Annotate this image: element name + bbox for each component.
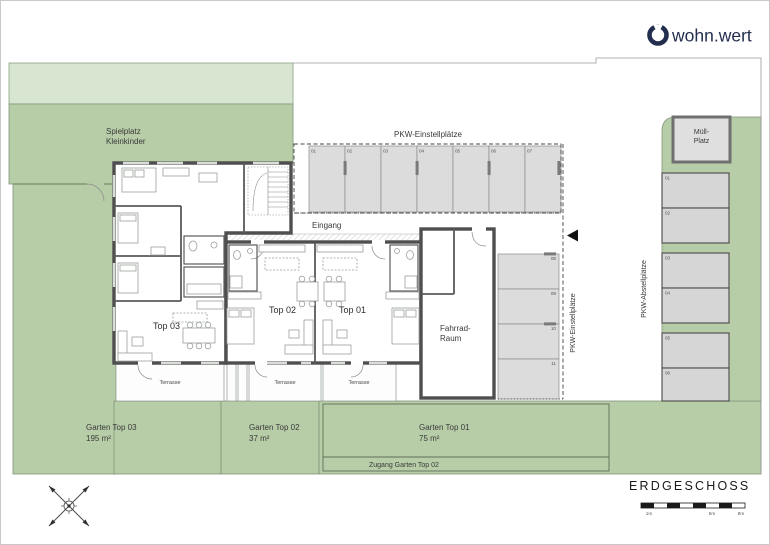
stall-number: 01 xyxy=(311,149,317,154)
bike-room-label-line1: Fahrrad- xyxy=(440,324,471,333)
brand-logo: wohn.wert xyxy=(650,25,752,46)
entrance-label: Eingang xyxy=(312,221,341,230)
terrace-label: Terrasse xyxy=(348,380,369,386)
stall-number: 11 xyxy=(551,361,556,366)
parking-stall xyxy=(662,253,729,288)
dining-table xyxy=(324,282,345,301)
garden-path-strip xyxy=(227,364,236,401)
shower-icon xyxy=(230,276,242,288)
parking-stall xyxy=(662,333,729,368)
kitchen-counter xyxy=(317,245,363,252)
toilet-icon xyxy=(189,241,197,251)
apartment-label-top02: Top 02 xyxy=(269,305,296,315)
stall-number: 05 xyxy=(455,149,461,154)
direction-arrow-icon xyxy=(567,230,578,242)
parking-stall xyxy=(381,146,417,212)
coffee-table xyxy=(289,330,299,338)
garden-top02-name: Garten Top 02 xyxy=(249,423,300,432)
wheel-stop xyxy=(544,252,556,255)
scale-tick: 1m xyxy=(646,511,653,516)
parking-stall xyxy=(662,368,729,401)
wheel-stop xyxy=(557,161,560,175)
garden-top03-area: 195 m² xyxy=(86,434,111,443)
parking-stall xyxy=(489,146,525,212)
scale-tick: 8m xyxy=(738,511,745,516)
wheel-stop xyxy=(344,161,347,175)
parking-right-column: Müll- Platz 01 02 03 04 05 06 PKW-Abstel… xyxy=(641,117,730,401)
parking-stall xyxy=(309,146,345,212)
parking-stall xyxy=(662,208,729,243)
stall-number: 06 xyxy=(665,371,671,376)
scale-tick: 5m xyxy=(709,511,716,516)
wardrobe xyxy=(163,168,189,176)
parking-stall xyxy=(498,254,559,289)
terrace-label: Terrasse xyxy=(274,380,295,386)
toilet-icon xyxy=(234,251,241,260)
stall-number: 08 xyxy=(551,256,557,261)
stall-number: 02 xyxy=(347,149,353,154)
toilet-icon xyxy=(407,251,414,260)
stall-number: 04 xyxy=(665,291,671,296)
parking-stalls-top: 01 02 03 04 05 06 07 xyxy=(309,146,561,212)
parking-stall xyxy=(453,146,489,212)
garden-access-label: Zugang Garten Top 02 xyxy=(369,462,439,469)
shower-icon xyxy=(405,276,417,288)
garden-top01-area: 75 m² xyxy=(419,434,440,443)
garden-top03-name: Garten Top 03 xyxy=(86,423,137,432)
wardrobe xyxy=(228,292,261,299)
stall-number: 10 xyxy=(551,326,557,331)
stall-number: 03 xyxy=(665,256,671,261)
building-block-bike xyxy=(421,229,494,398)
apartment-label-top03: Top 03 xyxy=(153,321,180,331)
playground-label-line2: Kleinkinder xyxy=(106,137,146,146)
wheel-stop xyxy=(544,322,556,325)
parking-stall xyxy=(417,146,453,212)
plan-title: ERDGESCHOSS xyxy=(629,479,750,493)
wheel-stop xyxy=(416,161,419,175)
bike-room-label-line2: Raum xyxy=(440,334,462,343)
stall-number: 06 xyxy=(491,149,497,154)
stall-number: 09 xyxy=(551,291,557,296)
dining-table xyxy=(297,282,318,301)
desk xyxy=(151,247,165,255)
compass-rose-icon xyxy=(49,486,89,526)
garden-top02-area: 37 m² xyxy=(249,434,270,443)
green-buffer-strip xyxy=(9,63,293,104)
coffee-table xyxy=(132,337,143,346)
sink-icon xyxy=(211,242,217,248)
plan-footer: ERDGESCHOSS 1m 5m 8m xyxy=(629,479,750,516)
garden-top01-name: Garten Top 01 xyxy=(419,423,470,432)
parking-right-label: PKW-Abstellplätze xyxy=(641,260,648,318)
sink-icon xyxy=(395,249,400,254)
kitchen-counter xyxy=(197,301,223,309)
parking-top-label: PKW-Einstellplätze xyxy=(394,130,462,139)
garden-path-strip xyxy=(238,364,247,401)
logo-wordmark: wohn.wert xyxy=(671,26,752,46)
playground-label-line1: Spielplatz xyxy=(106,127,141,136)
site-plan-drawing: Spielplatz Kleinkinder PKW-Einstellplätz… xyxy=(1,1,770,545)
parking-stall xyxy=(345,146,381,212)
coffee-table xyxy=(337,330,347,338)
waste-label-line2: Platz xyxy=(694,138,710,145)
desk xyxy=(199,173,217,182)
parking-stall xyxy=(662,288,729,323)
scale-bar: 1m 5m 8m xyxy=(641,503,745,516)
parking-side-label: PKW-Einstellplätze xyxy=(570,293,577,353)
parking-stall xyxy=(525,146,561,212)
stall-number: 07 xyxy=(527,149,533,154)
apartment-label-top01: Top 01 xyxy=(339,305,366,315)
terrace-label: Terrasse xyxy=(159,380,180,386)
floorplan-sheet: Spielplatz Kleinkinder PKW-Einstellplätz… xyxy=(0,0,770,545)
kitchen-counter xyxy=(259,245,305,252)
parking-stall xyxy=(498,289,559,324)
dining-table xyxy=(183,328,215,343)
stall-number: 03 xyxy=(383,149,389,154)
stall-number: 05 xyxy=(665,336,671,341)
waste-label-line1: Müll- xyxy=(694,129,710,136)
parking-stall xyxy=(498,359,559,399)
parking-row-top: PKW-Einstellplätze 01 02 03 04 05 06 07 xyxy=(294,130,561,213)
parking-stall xyxy=(662,173,729,208)
garden-top03-bottom xyxy=(114,401,221,474)
stall-number: 02 xyxy=(665,211,671,216)
sink-icon xyxy=(248,249,253,254)
parking-stall xyxy=(498,324,559,359)
stall-number: 01 xyxy=(665,176,671,181)
wheel-stop xyxy=(488,161,491,175)
wardrobe xyxy=(386,292,419,299)
stall-number: 04 xyxy=(419,149,425,154)
garden-top02-area xyxy=(221,401,319,474)
bathtub-icon xyxy=(187,284,221,294)
